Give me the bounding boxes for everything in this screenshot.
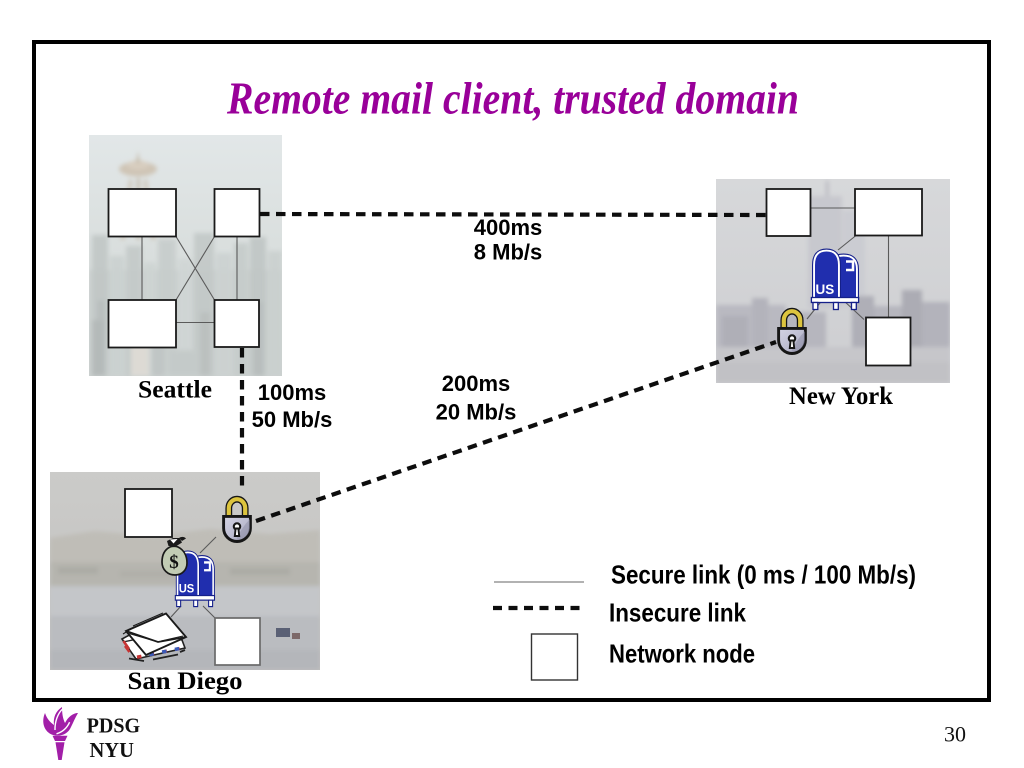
- svg-text:400ms: 400ms: [474, 215, 543, 240]
- svg-text:PDSG: PDSG: [87, 714, 141, 738]
- svg-text:Insecure link: Insecure link: [609, 598, 746, 628]
- svg-text:Seattle: Seattle: [138, 377, 212, 404]
- svg-text:Secure link (0 ms / 100 Mb/s): Secure link (0 ms / 100 Mb/s): [611, 560, 916, 590]
- svg-text:New York: New York: [789, 383, 893, 410]
- svg-text:100ms: 100ms: [258, 380, 327, 405]
- svg-text:8 Mb/s: 8 Mb/s: [474, 240, 542, 265]
- svg-text:Remote mail client, trusted do: Remote mail client, trusted domain: [226, 73, 799, 124]
- svg-text:San Diego: San Diego: [128, 668, 243, 695]
- svg-text:$: $: [169, 552, 179, 573]
- svg-text:20 Mb/s: 20 Mb/s: [436, 400, 517, 425]
- svg-text:30: 30: [944, 722, 966, 747]
- svg-text:50 Mb/s: 50 Mb/s: [252, 407, 333, 432]
- svg-text:200ms: 200ms: [442, 371, 511, 396]
- svg-text:NYU: NYU: [89, 738, 134, 762]
- svg-text:Network node: Network node: [609, 639, 755, 669]
